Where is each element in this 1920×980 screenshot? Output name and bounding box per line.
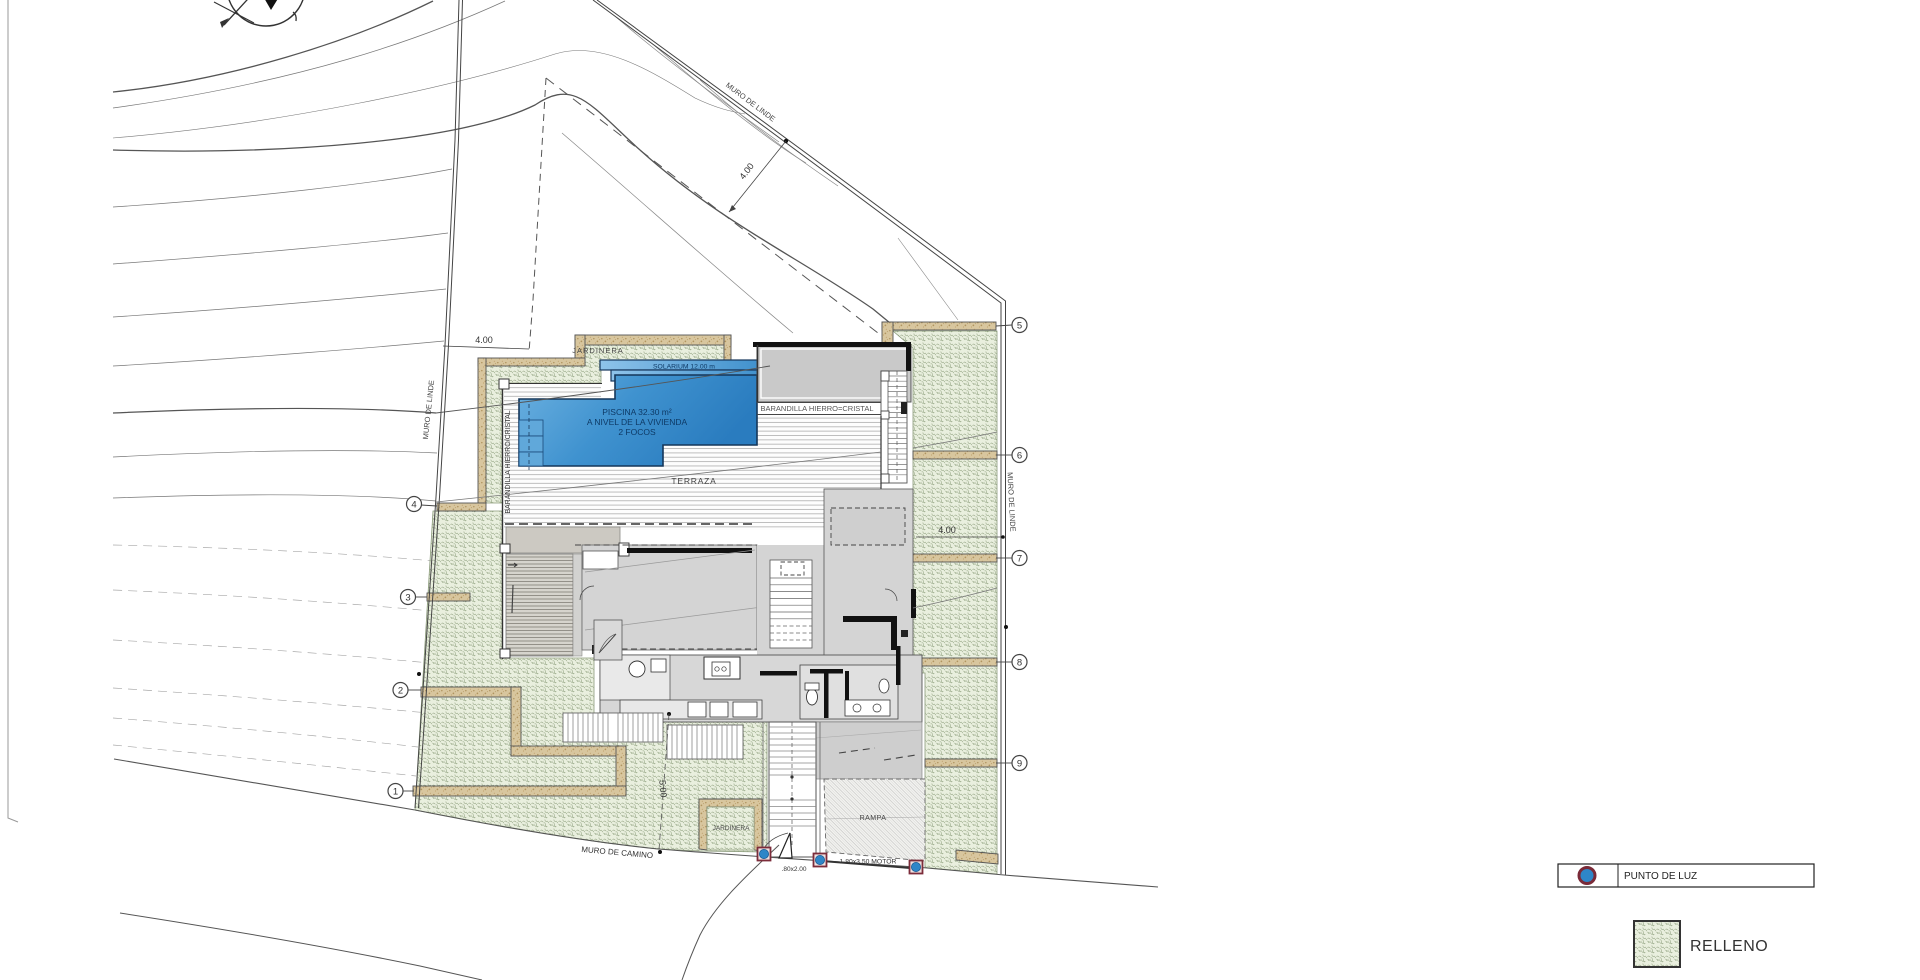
svg-text:RAMPA: RAMPA [860, 815, 887, 822]
svg-text:A NIVEL DE LA VIVIENDA: A NIVEL DE LA VIVIENDA [587, 417, 688, 427]
svg-text:2: 2 [398, 686, 403, 697]
svg-text:PUNTO DE LUZ: PUNTO DE LUZ [1624, 871, 1697, 882]
svg-text:TERRAZA: TERRAZA [671, 476, 716, 486]
svg-text:1: 1 [393, 787, 398, 798]
svg-text:.80x2.00: .80x2.00 [782, 866, 807, 873]
svg-text:5.00: 5.00 [657, 780, 668, 798]
svg-text:2 FOCOS: 2 FOCOS [618, 427, 656, 437]
svg-text:8: 8 [1017, 658, 1022, 669]
svg-text:4.00: 4.00 [938, 525, 956, 535]
svg-text:9: 9 [1017, 759, 1022, 770]
svg-text:BARANDILLA HIERRO=CRISTAL: BARANDILLA HIERRO=CRISTAL [760, 404, 873, 413]
svg-text:JARDINERA: JARDINERA [572, 346, 624, 355]
svg-text:PISCINA 32.30 m²: PISCINA 32.30 m² [602, 407, 672, 417]
svg-text:6: 6 [1017, 451, 1022, 462]
svg-text:JARDINERA: JARDINERA [713, 825, 751, 832]
svg-text:4.00: 4.00 [475, 335, 493, 345]
svg-text:3: 3 [405, 593, 410, 604]
svg-text:5: 5 [1017, 321, 1022, 332]
svg-text:1.80x3.50 MOTOR: 1.80x3.50 MOTOR [840, 859, 897, 866]
svg-text:SOLARIUM 12.00 m: SOLARIUM 12.00 m [653, 364, 715, 371]
svg-text:4: 4 [411, 500, 416, 511]
svg-text:BARANDILLA HIERRO/CRISTAL: BARANDILLA HIERRO/CRISTAL [505, 410, 512, 513]
svg-text:RELLENO: RELLENO [1690, 938, 1768, 955]
svg-text:7: 7 [1017, 554, 1022, 565]
